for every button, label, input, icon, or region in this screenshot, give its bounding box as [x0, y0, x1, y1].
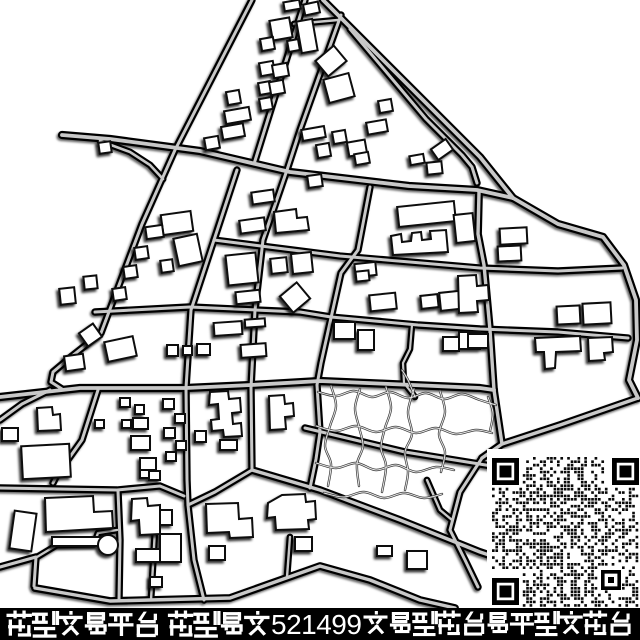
svg-text:521499: 521499	[271, 609, 361, 640]
